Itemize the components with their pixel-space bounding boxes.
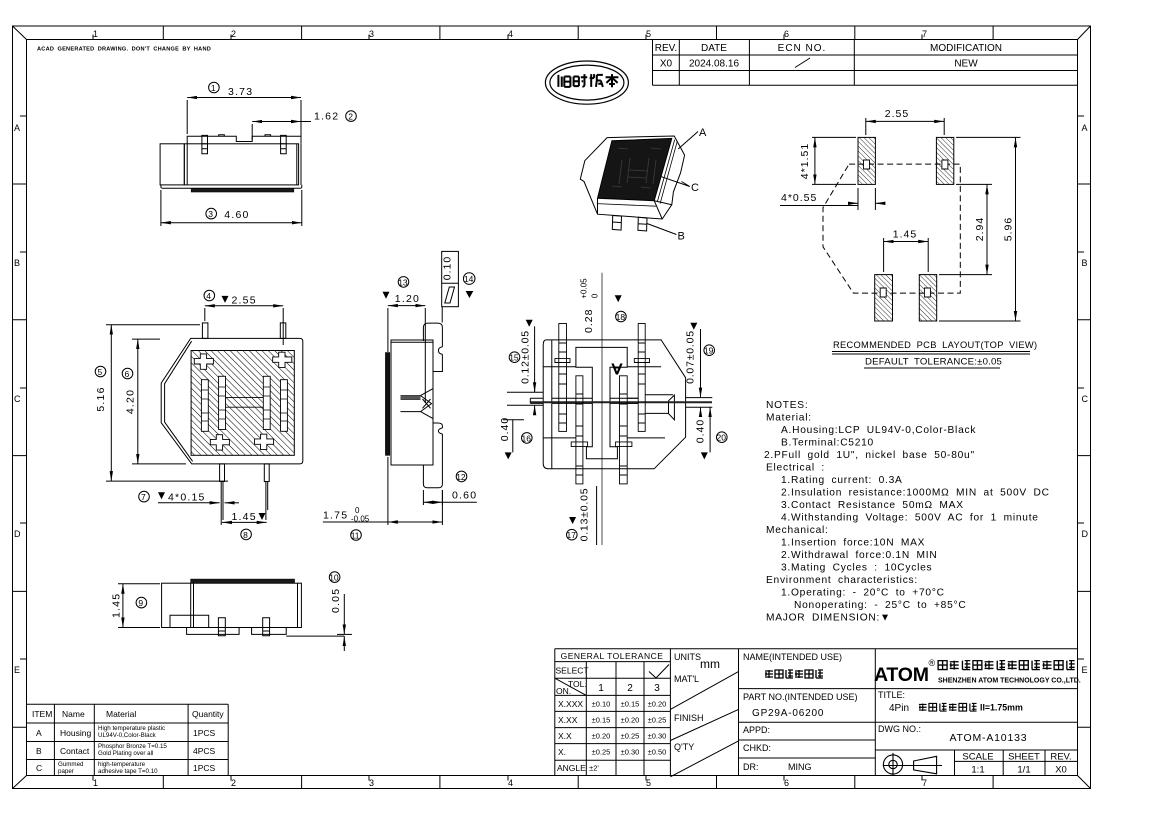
svg-text:4: 4 <box>508 29 513 39</box>
svg-text:1.Operating: - 20°C to +70°C: 1.Operating: - 20°C to +70°C <box>781 588 945 599</box>
svg-text:C: C <box>691 182 699 194</box>
svg-text:adhesive tape T=0.10: adhesive tape T=0.10 <box>98 768 158 775</box>
svg-text:C: C <box>14 394 21 404</box>
svg-text:ACAD GENERATED DRAWING. DON'T: ACAD GENERATED DRAWING. DON'T CHANGE BY … <box>37 47 211 53</box>
svg-text:0.10: 0.10 <box>442 256 454 280</box>
svg-text:Material: Material <box>106 709 136 719</box>
svg-text:FINISH: FINISH <box>674 713 704 723</box>
svg-text:0.40: 0.40 <box>499 417 511 441</box>
svg-text:Contact: Contact <box>60 746 90 756</box>
svg-text:6: 6 <box>784 29 789 39</box>
svg-text:1.75: 1.75 <box>323 510 348 522</box>
svg-text:6: 6 <box>784 778 789 788</box>
svg-text:2.55: 2.55 <box>885 108 909 120</box>
svg-text:Gold Plating over all: Gold Plating over all <box>98 750 153 757</box>
svg-text:15: 15 <box>509 353 519 363</box>
svg-text:5.96: 5.96 <box>1003 217 1015 241</box>
svg-text:±0.20: ±0.20 <box>621 716 640 725</box>
svg-text:2: 2 <box>231 29 236 39</box>
svg-text:NAME(INTENDED USE): NAME(INTENDED USE) <box>743 652 842 662</box>
svg-text:D: D <box>1082 529 1089 539</box>
svg-text:5.16: 5.16 <box>95 386 107 411</box>
svg-text:SHEET: SHEET <box>1008 752 1040 763</box>
svg-text:1.45: 1.45 <box>893 229 917 241</box>
svg-text:MING: MING <box>788 762 812 772</box>
svg-text:7: 7 <box>922 778 927 788</box>
svg-text:A: A <box>36 728 42 738</box>
svg-text:B: B <box>678 231 685 243</box>
svg-text:Gummed: Gummed <box>58 761 84 768</box>
svg-text:11: 11 <box>351 531 360 541</box>
svg-text:SHENZHEN ATOM TECHNOLOGY CO.,L: SHENZHEN ATOM TECHNOLOGY CO.,LTD. <box>938 678 1081 685</box>
svg-text:3: 3 <box>369 778 374 788</box>
svg-text:13: 13 <box>398 277 408 287</box>
svg-text:X0: X0 <box>1055 765 1067 776</box>
svg-text:C: C <box>36 763 42 773</box>
svg-text:2.55: 2.55 <box>232 295 257 307</box>
svg-text:TITLE:: TITLE: <box>878 690 905 700</box>
svg-text:ITEM: ITEM <box>32 709 52 719</box>
svg-text:0.40: 0.40 <box>695 419 707 443</box>
svg-text:UNITS: UNITS <box>674 652 701 662</box>
svg-text:0.07±0.05: 0.07±0.05 <box>685 330 697 384</box>
svg-text:NOTES:: NOTES: <box>766 400 808 411</box>
svg-text:Mechanical:: Mechanical: <box>766 525 829 536</box>
svg-text:REV.: REV. <box>655 43 677 54</box>
svg-text:±0.50: ±0.50 <box>648 748 667 757</box>
svg-text:3: 3 <box>369 29 374 39</box>
svg-text:1.Rating current: 0.3A: 1.Rating current: 0.3A <box>781 475 903 486</box>
svg-text:D: D <box>14 529 21 539</box>
svg-text:0.28: 0.28 <box>583 309 595 333</box>
svg-text:paper: paper <box>58 768 74 775</box>
svg-text:±0.25: ±0.25 <box>592 748 611 757</box>
svg-text:3.Contact Resistance 50mΩ MAX: 3.Contact Resistance 50mΩ MAX <box>781 500 964 511</box>
svg-text:2024.08.16: 2024.08.16 <box>689 59 739 70</box>
svg-text:±0.30: ±0.30 <box>648 732 667 741</box>
svg-text:Phosphor Bronze T=0.15: Phosphor Bronze T=0.15 <box>98 743 167 750</box>
svg-text:±0.20: ±0.20 <box>648 700 667 709</box>
svg-text:GP29A-06200: GP29A-06200 <box>752 708 824 719</box>
svg-text:high-temperature: high-temperature <box>98 761 146 768</box>
svg-text:8: 8 <box>243 530 248 540</box>
svg-text:Housing: Housing <box>60 728 91 738</box>
svg-text:±0.25: ±0.25 <box>648 716 667 725</box>
svg-text:12: 12 <box>456 472 466 482</box>
svg-text:0.12±0.05: 0.12±0.05 <box>520 330 532 384</box>
svg-text:1: 1 <box>598 683 604 694</box>
svg-text:B: B <box>14 258 20 268</box>
svg-text:1.62: 1.62 <box>314 111 339 123</box>
svg-text:4: 4 <box>206 291 211 301</box>
svg-text:0.05: 0.05 <box>330 588 342 613</box>
svg-text:High temperature plastic: High temperature plastic <box>98 725 165 732</box>
svg-text:B: B <box>36 746 42 756</box>
svg-text:II=1.75mm: II=1.75mm <box>980 703 1023 713</box>
svg-text:ATOM-A10133: ATOM-A10133 <box>950 732 1028 744</box>
svg-text:A.Housing:LCP UL94V-0,Color-Bl: A.Housing:LCP UL94V-0,Color-Black <box>781 425 976 436</box>
svg-text:5: 5 <box>98 367 103 377</box>
svg-text:SCALE: SCALE <box>962 752 993 763</box>
svg-text:REV.: REV. <box>1050 752 1071 763</box>
svg-text:MAT'L: MAT'L <box>674 674 699 684</box>
svg-text:4Pin: 4Pin <box>889 703 909 714</box>
svg-text:0: 0 <box>591 293 600 298</box>
svg-text:DWG NO.:: DWG NO.: <box>878 724 921 734</box>
svg-text:16: 16 <box>522 433 532 443</box>
svg-text:X.XX: X.XX <box>558 715 578 725</box>
svg-text:1: 1 <box>93 29 98 39</box>
svg-text:A: A <box>612 360 622 377</box>
svg-text:RECOMMENDED PCB LAYOUT(TOP VIE: RECOMMENDED PCB LAYOUT(TOP VIEW) <box>833 340 1037 350</box>
svg-text:3.73: 3.73 <box>228 86 253 98</box>
svg-text:18: 18 <box>616 312 626 322</box>
svg-text:2.94: 2.94 <box>974 217 986 241</box>
svg-text:±0.10: ±0.10 <box>592 700 611 709</box>
svg-text:14: 14 <box>464 274 474 284</box>
svg-text:0.60: 0.60 <box>452 490 477 502</box>
svg-text:CHKD:: CHKD: <box>743 743 771 753</box>
svg-text:1: 1 <box>93 778 98 788</box>
svg-text:DR:: DR: <box>743 762 759 772</box>
svg-text:APPD:: APPD: <box>743 725 770 735</box>
svg-text:MODIFICATION: MODIFICATION <box>930 43 1002 54</box>
svg-text:A: A <box>1082 123 1088 133</box>
svg-text:20: 20 <box>717 433 727 443</box>
svg-text:9: 9 <box>138 598 143 608</box>
svg-text:DATE: DATE <box>701 43 727 54</box>
svg-text:ECN NO.: ECN NO. <box>778 43 827 54</box>
svg-text:17: 17 <box>567 530 577 540</box>
svg-text:®: ® <box>929 658 936 668</box>
svg-text:1: 1 <box>211 83 216 93</box>
svg-text:Electrical :: Electrical : <box>766 463 825 474</box>
svg-text:±2': ±2' <box>589 764 599 773</box>
svg-text:B.Terminal:C5210: B.Terminal:C5210 <box>781 438 874 449</box>
svg-text:GENERAL TOLERANCE: GENERAL TOLERANCE <box>561 651 664 661</box>
svg-text:Name: Name <box>62 709 85 719</box>
svg-text:DEFAULT TOLERANCE:±0.05: DEFAULT TOLERANCE:±0.05 <box>865 357 1002 368</box>
svg-text:6: 6 <box>125 369 130 379</box>
svg-text:0.13±0.05: 0.13±0.05 <box>579 488 591 542</box>
svg-text:5: 5 <box>646 29 651 39</box>
svg-text:1.45: 1.45 <box>232 511 257 523</box>
svg-text:4*1.51: 4*1.51 <box>799 143 811 179</box>
svg-text:E: E <box>14 665 20 675</box>
svg-text:X.: X. <box>558 747 566 757</box>
svg-text:MAJOR DIMENSION:▼: MAJOR DIMENSION:▼ <box>766 613 891 624</box>
svg-text:5: 5 <box>646 778 651 788</box>
svg-text:1.Insertion force:10N MAX: 1.Insertion force:10N MAX <box>781 538 925 549</box>
svg-text:Q'TY: Q'TY <box>674 742 694 752</box>
svg-text:Nonoperating: - 25°C to +85°C: Nonoperating: - 25°C to +85°C <box>794 600 966 611</box>
svg-text:X.XXX: X.XXX <box>558 699 583 709</box>
svg-text:1:1: 1:1 <box>971 765 984 776</box>
svg-text:Environment characteristics:: Environment characteristics: <box>766 575 918 586</box>
svg-text:2: 2 <box>231 778 236 788</box>
svg-text:A: A <box>14 123 20 133</box>
svg-text:2.PFull gold 1U", nickel base: 2.PFull gold 1U", nickel base 50-80u" <box>764 450 975 461</box>
svg-text:X0: X0 <box>660 59 673 70</box>
svg-text:Quantity: Quantity <box>192 709 224 719</box>
svg-text:+0.05: +0.05 <box>580 278 589 299</box>
svg-text:±0.15: ±0.15 <box>592 716 611 725</box>
svg-text:2: 2 <box>627 683 633 694</box>
svg-text:4.20: 4.20 <box>125 389 137 414</box>
svg-text:19: 19 <box>704 346 714 356</box>
svg-text:-0.05: -0.05 <box>351 515 370 524</box>
svg-text:Material:: Material: <box>766 413 812 424</box>
svg-text:C: C <box>1082 394 1089 404</box>
svg-text:4*0.15: 4*0.15 <box>168 492 206 504</box>
svg-text:4.60: 4.60 <box>224 209 249 221</box>
svg-text:B: B <box>1082 258 1088 268</box>
svg-text:ANGLE: ANGLE <box>557 763 586 773</box>
svg-text:7: 7 <box>141 492 146 502</box>
svg-text:±0.20: ±0.20 <box>592 732 611 741</box>
svg-text:X.X: X.X <box>558 731 572 741</box>
svg-text:3.Mating Cycles : 10Cycles: 3.Mating Cycles : 10Cycles <box>781 563 932 574</box>
svg-text:ATOM: ATOM <box>874 664 929 686</box>
svg-text:1/1: 1/1 <box>1017 765 1030 776</box>
svg-text:NEW: NEW <box>954 59 978 70</box>
svg-text:4PCS: 4PCS <box>193 746 216 756</box>
svg-text:2: 2 <box>348 112 353 122</box>
svg-text:SELECT: SELECT <box>556 666 589 676</box>
svg-text:2.Insulation resistance:1000MΩ: 2.Insulation resistance:1000MΩ MIN at 50… <box>781 488 1050 499</box>
svg-text:3: 3 <box>208 209 213 219</box>
svg-text:UL94V-0,Color-Black: UL94V-0,Color-Black <box>98 732 157 739</box>
svg-text:4*0.55: 4*0.55 <box>781 192 817 204</box>
svg-text:PART NO.(INTENDED USE): PART NO.(INTENDED USE) <box>743 692 858 702</box>
svg-text:1PCS: 1PCS <box>193 763 216 773</box>
svg-text:±0.15: ±0.15 <box>621 700 640 709</box>
svg-text:±0.30: ±0.30 <box>621 748 640 757</box>
svg-text:10: 10 <box>329 573 339 583</box>
svg-text:1.20: 1.20 <box>395 293 420 305</box>
svg-text:2.Withdrawal force:0.1N MIN: 2.Withdrawal force:0.1N MIN <box>781 550 937 561</box>
svg-text:3: 3 <box>654 683 660 694</box>
svg-text:7: 7 <box>922 29 927 39</box>
svg-text:mm: mm <box>700 657 720 671</box>
svg-text:ON.: ON. <box>556 686 571 696</box>
svg-text:1.45: 1.45 <box>111 593 123 618</box>
svg-text:A: A <box>699 127 707 139</box>
svg-text:±0.25: ±0.25 <box>621 732 640 741</box>
svg-text:1PCS: 1PCS <box>193 728 216 738</box>
svg-text:4: 4 <box>508 778 513 788</box>
svg-text:E: E <box>1082 665 1088 675</box>
svg-text:4.Withstanding Voltage: 500V A: 4.Withstanding Voltage: 500V AC for 1 mi… <box>781 513 1039 524</box>
